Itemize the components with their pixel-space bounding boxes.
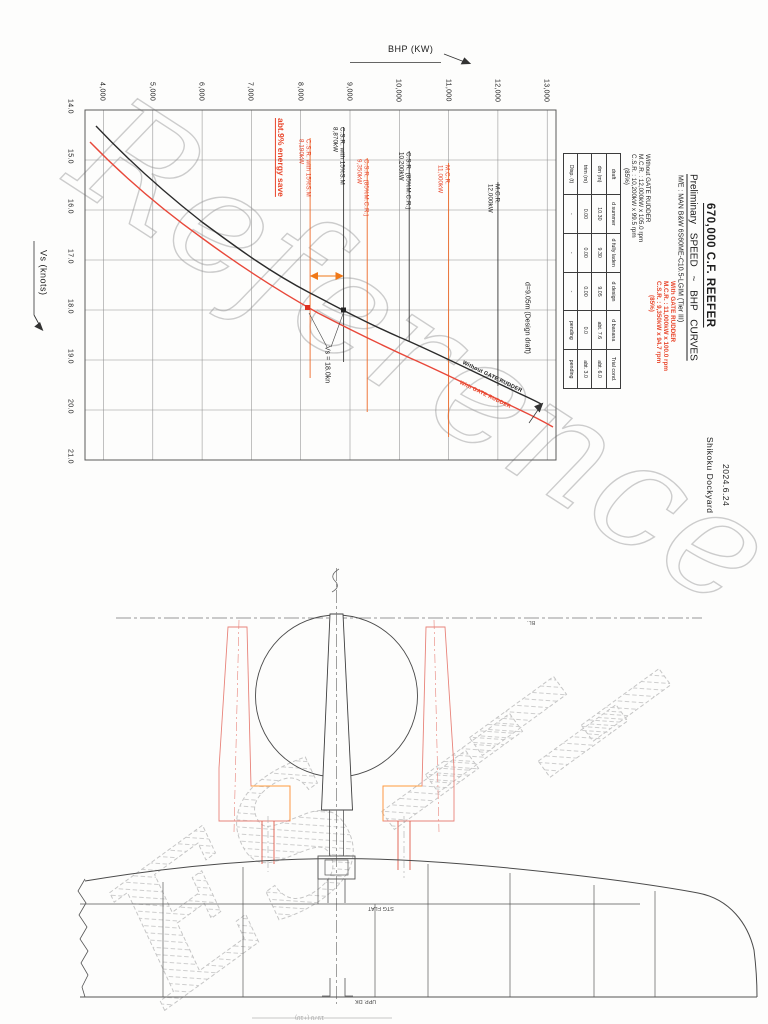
vs-tick: 20.0 <box>66 399 73 414</box>
sheet-subtitle: Preliminary SPEED ~ BHP CURVES <box>687 174 698 361</box>
svg-text:ES: ES <box>68 716 412 1024</box>
upper-deck-label: UPP. DK <box>355 998 376 1004</box>
gate-rudder-blade-right <box>383 620 454 878</box>
bhp-tick: 8,000 <box>296 82 303 101</box>
chart-frame <box>85 110 556 460</box>
energy-save-annotation: abt.9% energy save <box>276 118 285 197</box>
propeller-circle <box>256 615 418 777</box>
bhp-axis-arrow <box>350 54 470 64</box>
stern-arrangement-drawing <box>78 568 757 1018</box>
table-row: dm (m)10.30 9.309.05 abt. 7.6abt. 6.0 <box>592 154 606 389</box>
rudder-trunk <box>318 856 355 879</box>
ref-label-csr85-without: C.S.R. (85%M.C.R.)10,200kW <box>397 152 410 210</box>
point-with-gate-rudder <box>305 305 310 310</box>
bottom-dimension-label: 1970 (+10) <box>295 1014 324 1020</box>
without-gate-rudder-block: Without GATE RUDDER M.C.R. : 12,000kW x … <box>622 154 651 242</box>
curve-without-gate-rudder <box>96 126 541 404</box>
bhp-tick: 6,000 <box>197 82 204 101</box>
speed-point-annotation: Vs = 18.0kn <box>323 346 330 383</box>
bhp-tick: 13,000 <box>542 79 549 102</box>
table-header-row: draft d summer d fully laden d design d … <box>606 154 620 389</box>
vs-tick: 21.0 <box>66 449 73 464</box>
bhp-tick: 5,000 <box>148 82 155 101</box>
vs-tick: 16.0 <box>66 199 73 214</box>
linework-canvas: Reference <box>0 0 768 1024</box>
main-engine-line: M/E : MAN B&W 6S60ME-C10.5-LGIM (Tier II… <box>676 175 683 322</box>
ref-label-csr85-with: C.S.R. (85%M.C.R.)9,350kW <box>355 159 368 217</box>
energy-save-arrow <box>311 273 343 279</box>
vs-tick: 18.0 <box>66 299 73 314</box>
bhp-tick: 9,000 <box>345 82 352 101</box>
curve-with-gate-rudder <box>90 142 553 427</box>
vs-tick: 19.0 <box>66 349 73 364</box>
gate-rudder-blade-left <box>219 620 290 872</box>
vs-axis-label: Vs (knots) <box>38 250 47 296</box>
bhp-tick: 11,000 <box>444 79 451 102</box>
with-gate-rudder-block: With GATE RUDDER M.C.R. : 11,000kW x 100… <box>648 281 676 371</box>
break-line <box>78 879 88 997</box>
bhp-tick: 4,000 <box>98 82 105 101</box>
vs-tick: 14.0 <box>66 99 73 114</box>
hatched-watermark: ES <box>68 669 671 1024</box>
ref-label-csr-sm-without: C.S.R. with 15%S.M8,870kW <box>331 127 344 185</box>
design-draft-leader <box>529 404 543 424</box>
bhp-tick: 7,000 <box>246 82 253 101</box>
centre-rudder-blade <box>322 614 353 810</box>
ref-label-mcr-with: M.C.R.11,000kW <box>436 165 449 193</box>
chart-gridlines <box>85 110 556 460</box>
bhp-tick: 12,000 <box>493 79 500 102</box>
centreline-symbol <box>332 569 339 592</box>
stg-flat-label: STG FLAT <box>368 905 394 911</box>
frame-sections <box>163 859 655 997</box>
baseline-label: BL. <box>527 619 535 625</box>
bhp-tick: 10,000 <box>394 79 401 102</box>
vs-tick: 17.0 <box>66 249 73 264</box>
vs-tick: 15.0 <box>66 149 73 164</box>
table-row: Disp. (t)- -- pendingpending <box>564 154 578 389</box>
draft-table: draft d summer d fully laden d design d … <box>563 153 621 389</box>
shipyard-name: Shikoku Dockyard <box>705 437 714 514</box>
point-without-gate-rudder <box>341 308 346 313</box>
design-draft-annotation: d=9.05m (Design draft) <box>523 282 530 354</box>
hull-profile <box>85 859 757 997</box>
scanned-document-page: { "sheet1": { "title": "670,000 C.F. REE… <box>0 0 768 1024</box>
speed-point-leaders <box>309 313 343 347</box>
table-row: trim (m)0.00 0.000.00 0.0abt. 3.0 <box>578 154 592 389</box>
document-date: 2024.6.24 <box>721 464 730 506</box>
sheet-title: 670,000 C.F. REEFER <box>704 203 716 328</box>
ref-label-csr-sm-with: C.S.R. with 15%S.M8,190kW <box>297 139 310 197</box>
ref-label-mcr-without: M.C.R.12,000kW <box>486 184 499 213</box>
bhp-axis-label: BHP (KW) <box>388 44 433 54</box>
